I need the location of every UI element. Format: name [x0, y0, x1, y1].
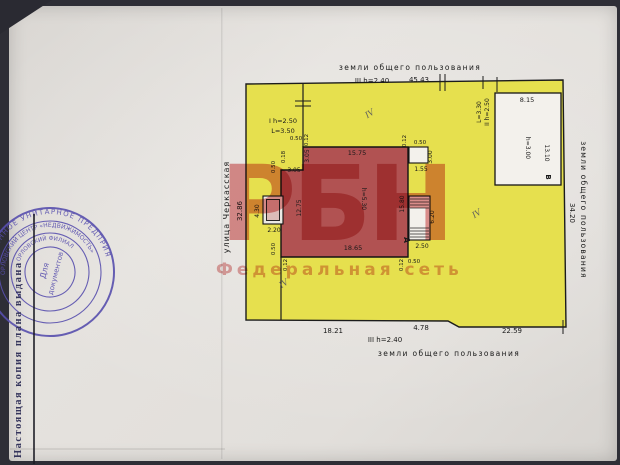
- copy-issued-note: Настоящая копия плана выдана: [13, 180, 24, 458]
- stamp-center-line1: Для: [38, 262, 51, 280]
- scanned-plan-photo: { "watermark": { "logo": "РБН", "subtitl…: [0, 0, 620, 465]
- vertical-rule: [33, 214, 35, 464]
- round-stamp: ГОСУДАРСТВЕННОЕ УНИТАРНОЕ ПРЕДПРИЯТИЕ ОР…: [0, 0, 620, 465]
- stamp-center-line2: документов: [47, 251, 65, 296]
